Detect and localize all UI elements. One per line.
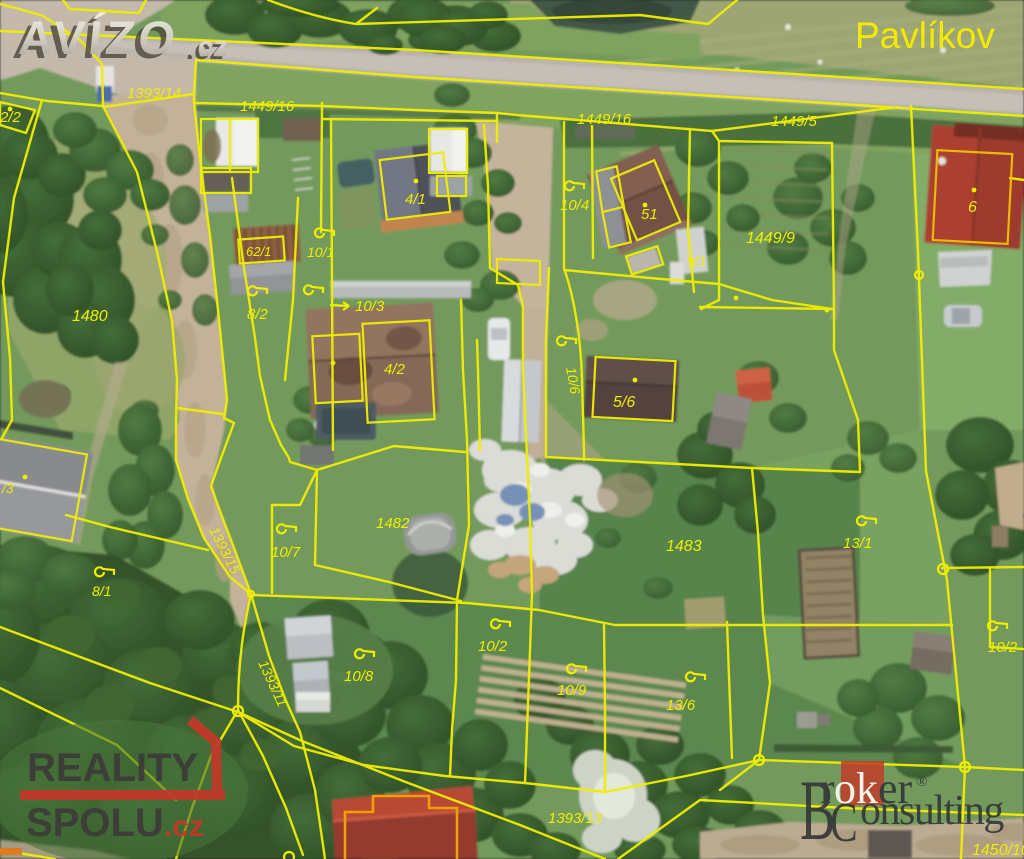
svg-text:1483: 1483	[666, 538, 702, 555]
svg-text:8/1: 8/1	[92, 583, 111, 599]
svg-text:1393/14: 1393/14	[127, 85, 181, 102]
svg-text:10/4: 10/4	[560, 197, 589, 214]
svg-text:10/2: 10/2	[988, 639, 1018, 656]
svg-text:8/2: 8/2	[247, 306, 269, 323]
svg-text:REALITY: REALITY	[27, 746, 198, 790]
svg-text:13/1: 13/1	[843, 535, 872, 552]
svg-text:51: 51	[641, 206, 658, 223]
svg-text:10/9: 10/9	[557, 682, 587, 699]
svg-text:1480: 1480	[72, 308, 108, 325]
svg-text:10/7: 10/7	[271, 544, 301, 561]
svg-text:1450/10: 1450/10	[972, 842, 1024, 859]
svg-text:.cz: .cz	[188, 31, 229, 62]
svg-text:Pavlíkov: Pavlíkov	[855, 15, 995, 56]
svg-text:10/3: 10/3	[355, 298, 385, 315]
svg-text:SPOLU: SPOLU	[26, 801, 164, 845]
svg-text:2/2: 2/2	[0, 109, 22, 126]
svg-text:1449/16: 1449/16	[240, 98, 295, 115]
svg-text:6: 6	[968, 199, 977, 216]
svg-text:4/2: 4/2	[384, 361, 406, 378]
svg-text:62/1: 62/1	[246, 244, 271, 259]
svg-text:9/1: 9/1	[687, 253, 706, 269]
svg-text:.cz: .cz	[164, 810, 204, 843]
svg-text:13/6: 13/6	[666, 697, 696, 714]
svg-text:4/1: 4/1	[405, 191, 426, 208]
svg-text:onsulting: onsulting	[860, 788, 1004, 834]
svg-text:1449/9: 1449/9	[746, 230, 795, 247]
svg-text:AVÍZO: AVÍZO	[16, 11, 182, 64]
svg-text:C: C	[830, 791, 858, 854]
svg-text:10/2: 10/2	[478, 638, 508, 655]
svg-text:1393/13: 1393/13	[548, 810, 603, 827]
svg-text:1449/5: 1449/5	[771, 113, 818, 130]
svg-text:10/8: 10/8	[344, 668, 374, 685]
svg-text:1482: 1482	[376, 515, 410, 532]
svg-text:1449/16: 1449/16	[577, 111, 632, 128]
svg-text:/3: /3	[1, 480, 14, 496]
svg-text:5/6: 5/6	[613, 394, 635, 411]
svg-text:10/1: 10/1	[307, 244, 334, 260]
